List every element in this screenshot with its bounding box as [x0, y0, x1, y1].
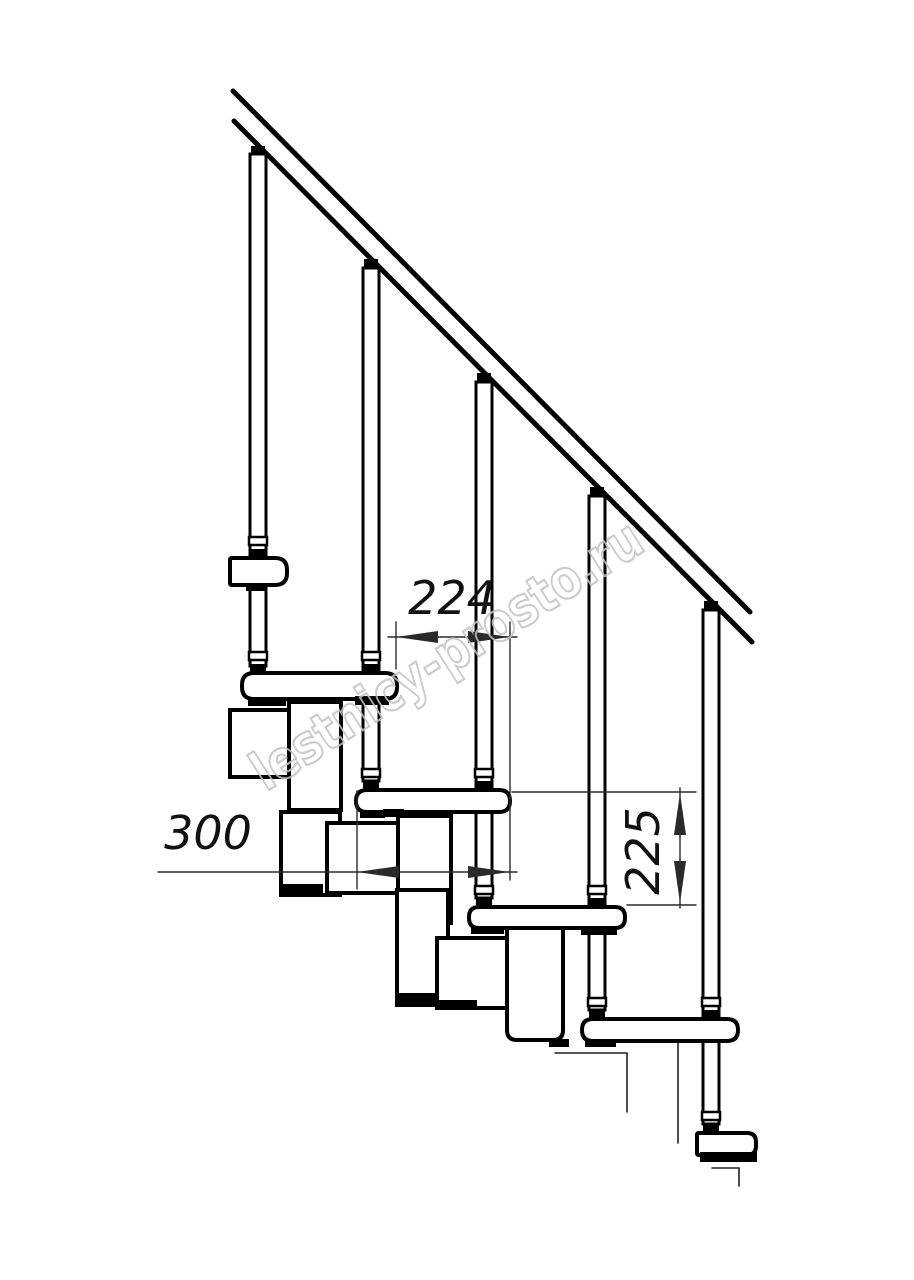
baluster-collar: [249, 537, 267, 545]
module-flange: [383, 809, 404, 817]
baluster-collar: [475, 886, 493, 894]
module-flange: [248, 698, 286, 706]
dimension-arrowhead: [674, 861, 686, 903]
baluster-collar: [588, 886, 606, 894]
baluster-collar: [702, 1112, 720, 1120]
baluster-collar: [249, 652, 267, 660]
baluster-collar: [588, 998, 606, 1006]
baluster-foot-wedge: [703, 1010, 719, 1019]
baluster-foot-wedge: [363, 781, 379, 790]
stair-tread: [230, 558, 287, 585]
module-flange: [246, 584, 266, 591]
rail-joint-wedge: [364, 259, 378, 268]
baluster-foot-wedge: [476, 781, 492, 790]
baluster-post: [703, 610, 719, 1124]
staircase-drawing: 224300225lestnicy-prosto.ru: [0, 0, 914, 1280]
baluster-foot-wedge: [476, 898, 492, 907]
baluster-foot-wedge: [250, 549, 266, 558]
baluster-foot-wedge: [589, 1010, 605, 1019]
dimension-label-rise: 225: [616, 807, 670, 895]
baluster-foot-wedge: [703, 1124, 719, 1133]
baluster-collar: [475, 769, 493, 777]
rail-joint-wedge: [704, 601, 718, 610]
rail-joint-wedge: [590, 487, 604, 496]
module-flange: [397, 993, 437, 1004]
stair-tread: [697, 1133, 756, 1155]
drawing-page: 224300225lestnicy-prosto.ru: [0, 0, 914, 1280]
baluster-collar: [362, 652, 380, 660]
stair-tread: [356, 790, 510, 812]
rail-joint-wedge: [251, 146, 265, 155]
dimension-arrowhead: [674, 793, 686, 835]
stair-tread: [582, 1019, 738, 1041]
stair-tread: [469, 907, 625, 928]
module-flange: [700, 1152, 757, 1162]
module-flange: [549, 1039, 569, 1047]
baluster-collar: [362, 769, 380, 777]
module-flange: [360, 811, 385, 818]
module-flange: [581, 926, 617, 935]
module-flange: [437, 1000, 477, 1009]
baluster-foot-wedge: [589, 898, 605, 907]
rail-joint-wedge: [477, 373, 491, 382]
module-flange: [281, 884, 323, 895]
stringer-module-box: [327, 823, 404, 893]
dimension-label-tread-depth: 300: [164, 806, 252, 860]
module-flange: [585, 1040, 616, 1047]
stringer-module-box: [507, 927, 563, 1040]
module-flange: [471, 927, 504, 934]
baluster-collar: [702, 998, 720, 1006]
baluster-foot-wedge: [250, 664, 266, 673]
